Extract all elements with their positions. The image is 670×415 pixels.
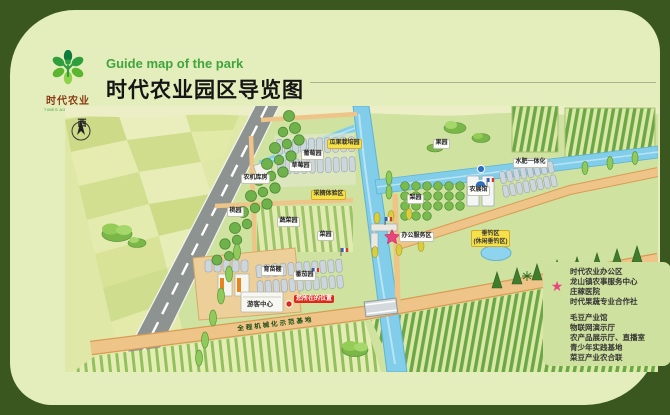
legend-item: 毛豆产业馆 [570, 313, 645, 323]
poster-card: 时代农业 TIMES AGRICULTURE Guide map of the … [10, 10, 660, 405]
legend-item: 青少年实践基地 [570, 343, 645, 353]
compass-needle-icon [69, 116, 93, 144]
subtitle-en: Guide map of the park [106, 56, 304, 71]
map-label: 垂钓区 (休闲垂钓区) [471, 230, 510, 247]
map-label: 菜园 [317, 231, 334, 241]
legend-item: 时代果蔬专业合作社 [570, 297, 638, 307]
visitor-center-label: 游客中心 [247, 298, 273, 308]
compass: 西 [69, 116, 95, 129]
header-rule [310, 82, 656, 83]
map-label: 番茄园 [293, 271, 316, 281]
map-label: 葡萄园 [301, 150, 324, 160]
map-label: 桃园 [227, 207, 244, 217]
map-label-line: 垂钓区 [474, 231, 508, 239]
you-are-here-dot [286, 301, 292, 307]
office-building [371, 224, 397, 231]
map-label: 办公服务区 [399, 232, 434, 242]
shop-sign [237, 278, 241, 292]
legend-star-group: ★ 时代农业办公区 龙山镇农事服务中心 庄稼医院 时代果蔬专业合作社 [549, 267, 665, 307]
blue-dot-marker [477, 165, 484, 172]
legend-item: 菜豆产业农合联 [570, 353, 645, 363]
you-are-here-label: 您所在的位置 [294, 295, 334, 303]
map-label: 草莓园 [289, 162, 312, 172]
map-label: 瓜果栽培园 [327, 139, 362, 149]
park-map: 西 瓜果栽培园 葡萄园 草莓园 农机库房 采摘体验区 桃园 蔬菜园 菜园 果园 … [65, 106, 658, 372]
fishing-pond [481, 246, 511, 261]
map-label: 农机库房 [241, 174, 270, 184]
legend-item: 龙山镇农事服务中心 [570, 277, 638, 287]
bridge [364, 298, 398, 317]
legend-item: 农产品展示厅、直播室 [570, 333, 645, 343]
legend-dot-group: 毛豆产业馆 物联网演示厅 农产品展示厅、直播室 青少年实践基地 菜豆产业农合联 [549, 313, 665, 363]
brand-logo: 时代农业 TIMES AGRICULTURE [36, 50, 100, 112]
map-label: 农展馆 [467, 186, 490, 196]
tree-logo-icon [46, 50, 90, 88]
page-title: 时代农业园区导览图 [106, 74, 304, 104]
map-label-line: (休闲垂钓区) [474, 239, 508, 247]
map-label: 蔬菜园 [277, 217, 300, 227]
brand-name: 时代农业 [36, 92, 100, 107]
map-label: 育苗棚 [261, 266, 284, 276]
map-label: 水肥一体化 [513, 158, 548, 168]
map-label: 梨园 [407, 194, 424, 204]
legend-item: 庄稼医院 [570, 287, 638, 297]
office-building [371, 233, 378, 248]
map-label: 果园 [433, 139, 450, 149]
map-label: 采摘体验区 [311, 190, 346, 200]
star-legend-icon: ★ [551, 278, 564, 294]
legend-item: 物联网演示厅 [570, 323, 645, 333]
map-legend: ★ 时代农业办公区 龙山镇农事服务中心 庄稼医院 时代果蔬专业合作社 毛豆产业馆… [543, 262, 670, 366]
legend-item: 时代农业办公区 [570, 267, 638, 277]
